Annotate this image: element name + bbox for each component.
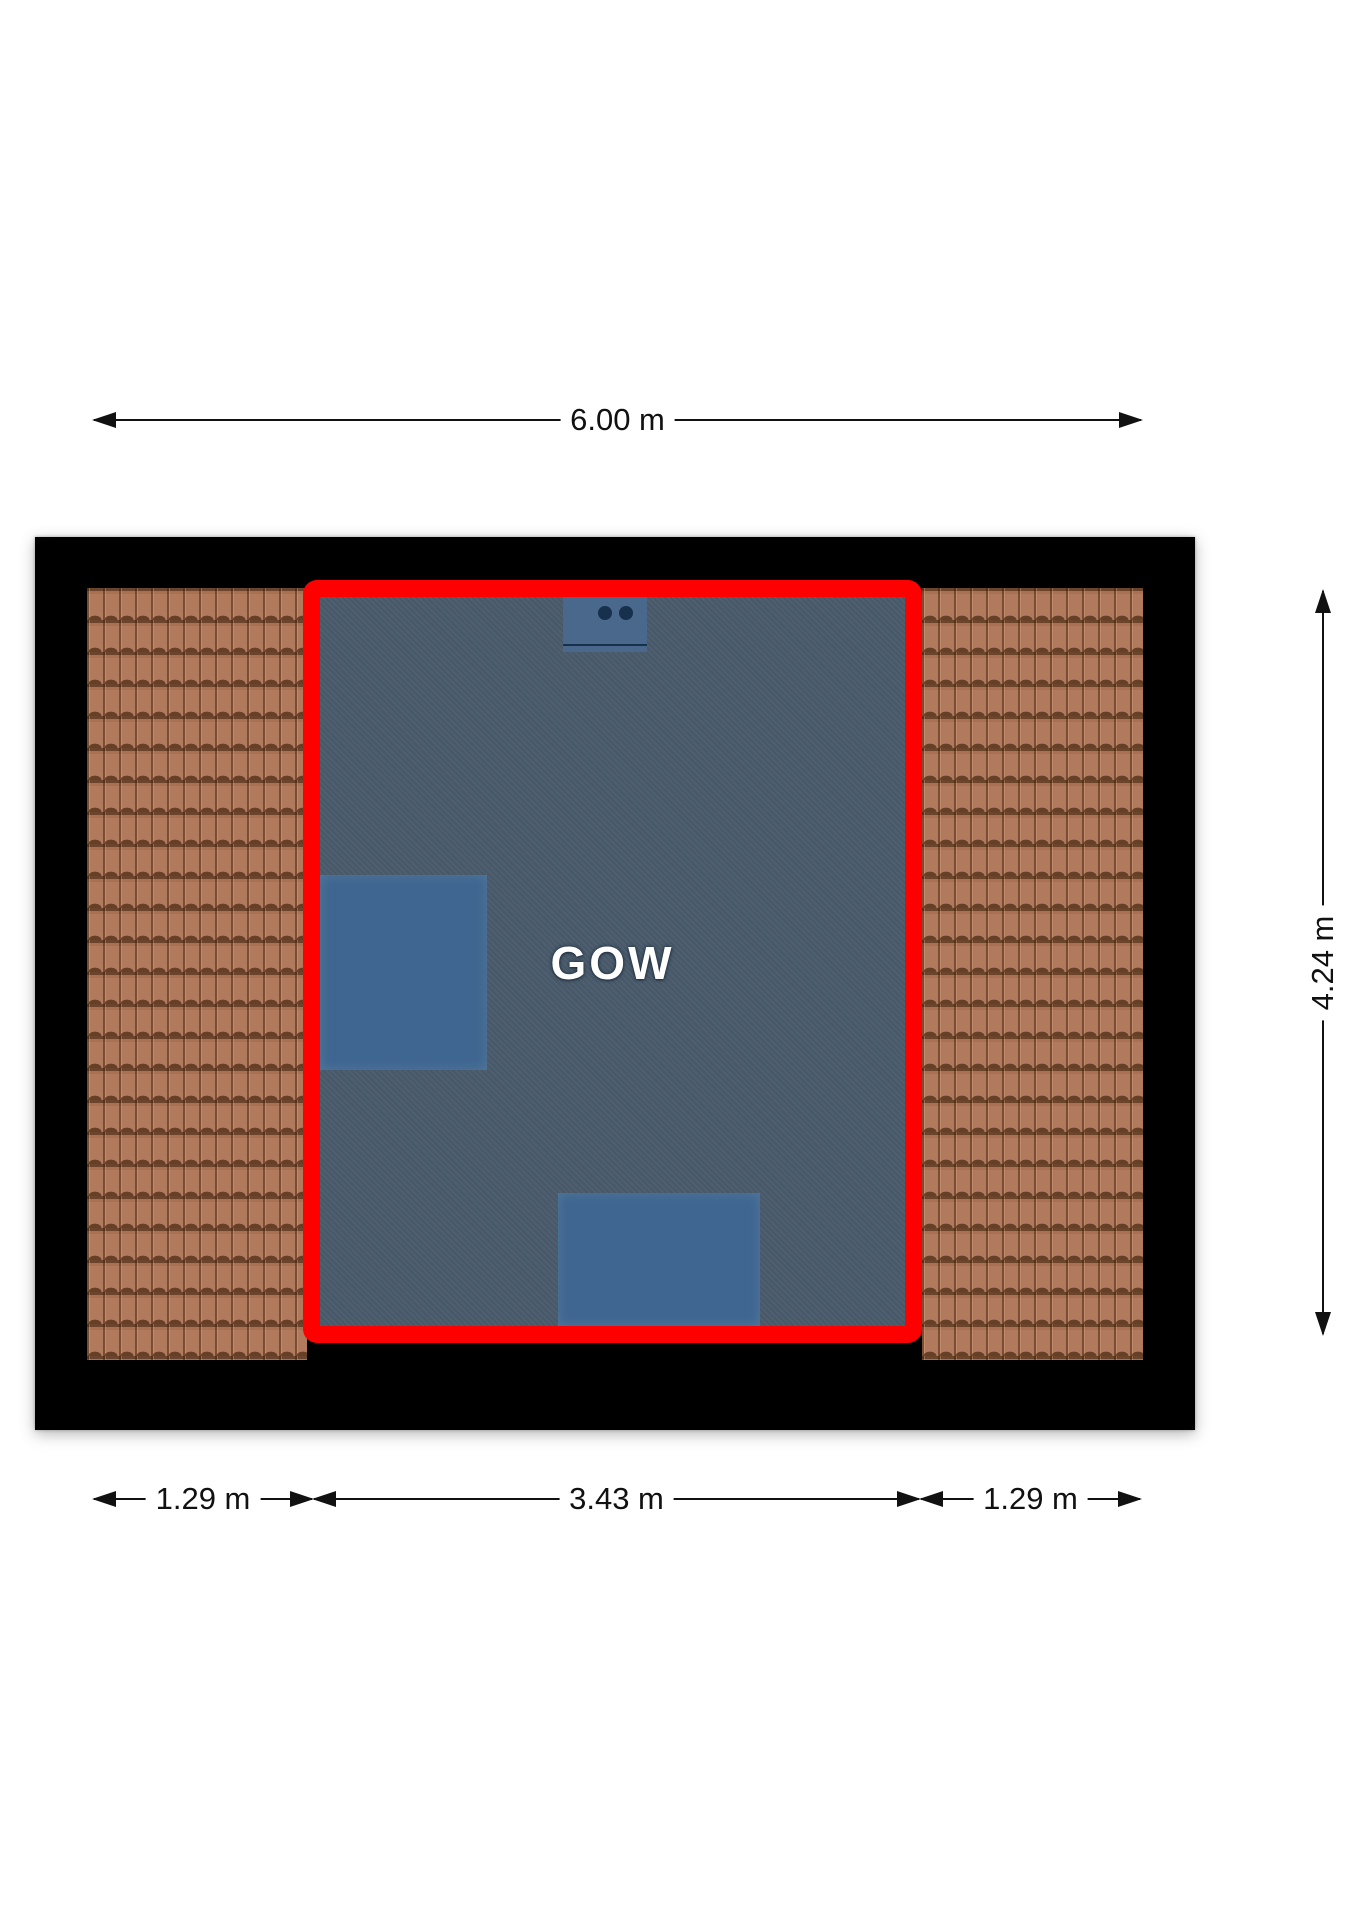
appliance-block [563, 597, 647, 652]
dimension-bottom-middle-label: 3.43 m [559, 1482, 674, 1516]
arrow-left-icon [312, 1491, 336, 1507]
roof-frame: GOW [35, 537, 1195, 1430]
room-outline: GOW [303, 580, 922, 1343]
room-label: GOW [551, 936, 675, 990]
arrow-right-icon [897, 1491, 921, 1507]
arrow-right-icon [290, 1491, 314, 1507]
dimension-bottom-left: 1.29 m [93, 1479, 313, 1519]
arrow-left-icon [919, 1491, 943, 1507]
dimension-bottom-middle: 3.43 m [313, 1479, 920, 1519]
arrow-left-icon [92, 412, 116, 428]
dimension-bottom-right: 1.29 m [920, 1479, 1141, 1519]
floor-plan-canvas: 6.00 m GOW 4.24 m 1. [0, 0, 1358, 1920]
dimension-right-label: 4.24 m [1306, 905, 1340, 1020]
furniture-rect-bottom [558, 1193, 760, 1326]
roof-tiles-left [87, 588, 307, 1360]
room-area: GOW [320, 597, 905, 1326]
dimension-right: 4.24 m [1306, 590, 1340, 1335]
roof-tiles-right [922, 588, 1143, 1360]
dimension-bottom-right-label: 1.29 m [973, 1482, 1088, 1516]
furniture-rect-left [320, 875, 487, 1070]
arrow-up-icon [1315, 589, 1331, 613]
knob-icon [598, 606, 612, 620]
knob-icon [619, 606, 633, 620]
dimension-top-label: 6.00 m [560, 403, 675, 437]
arrow-right-icon [1118, 1491, 1142, 1507]
arrow-left-icon [92, 1491, 116, 1507]
arrow-down-icon [1315, 1312, 1331, 1336]
arrow-right-icon [1119, 412, 1143, 428]
dimension-bottom-left-label: 1.29 m [146, 1482, 261, 1516]
appliance-edge-line [563, 644, 647, 646]
dimension-top: 6.00 m [93, 400, 1142, 440]
